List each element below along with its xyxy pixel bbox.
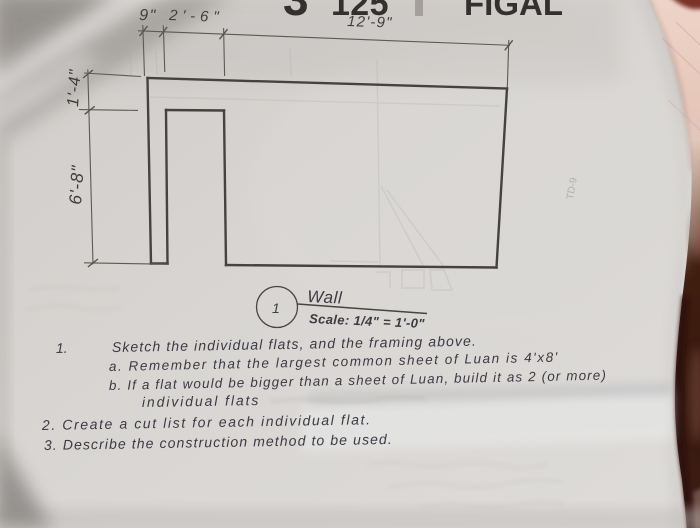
svg-text:1'-4": 1'-4" [64,68,85,107]
svg-text:Wall: Wall [307,287,344,308]
svg-text:12'-9": 12'-9" [347,13,393,32]
svg-text:6'-8": 6'-8" [65,164,88,205]
svg-text:FIGAL: FIGAL [464,0,563,22]
svg-text:1.: 1. [56,340,68,356]
svg-text:2'-6": 2'-6" [168,7,224,26]
svg-text:9": 9" [139,7,157,25]
svg-text:3: 3 [283,0,309,25]
svg-text:1: 1 [272,300,280,316]
svg-text:individual flats: individual flats [142,392,261,410]
